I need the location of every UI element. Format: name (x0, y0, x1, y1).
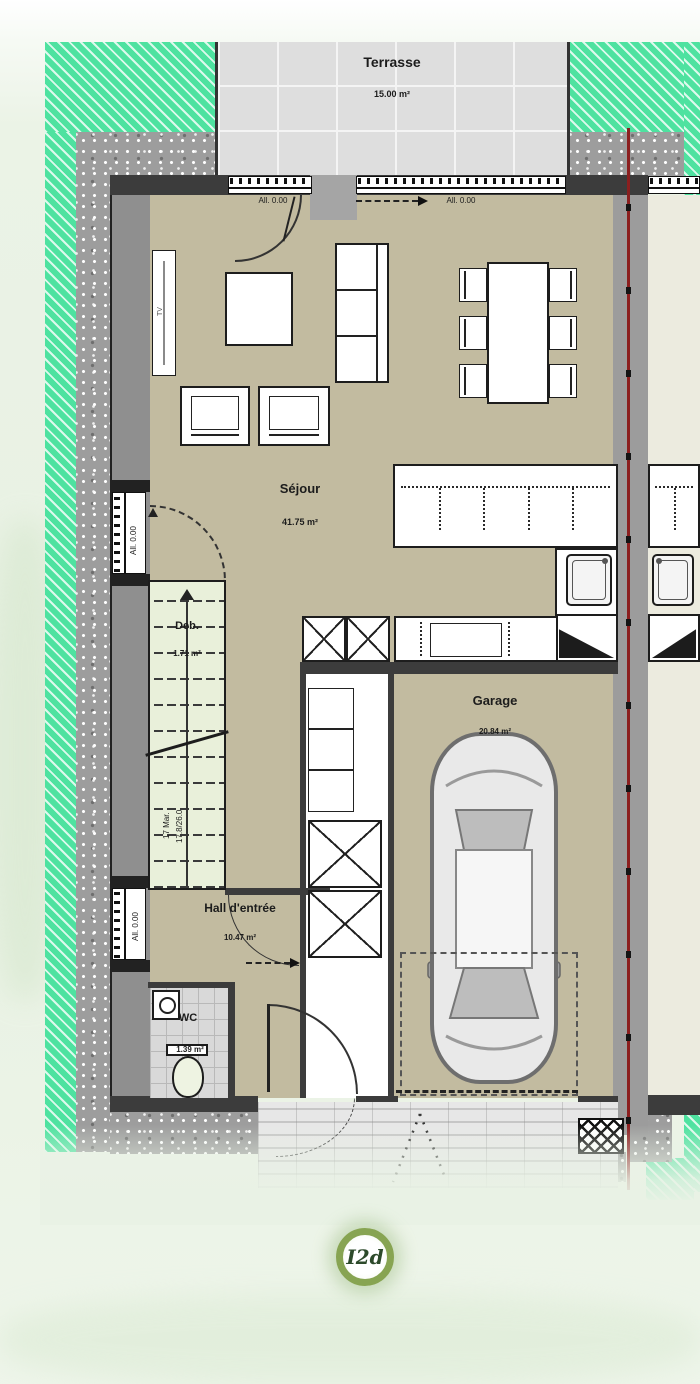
dark-unit-fill (559, 618, 614, 658)
neighbor-sink (652, 554, 694, 606)
window-glass-line (124, 889, 126, 959)
window-hatch (358, 178, 564, 184)
sofa-cushion-divider (337, 335, 376, 337)
sill-annotation-top-left: All. 0.00 (238, 197, 308, 206)
room-label-wc: WC (166, 1012, 210, 1024)
neighbor-counter (648, 464, 700, 548)
tall-cupboard (308, 890, 382, 958)
door-step-block (310, 175, 357, 220)
window-glass-line (649, 187, 699, 189)
neighbor-window-top (648, 176, 700, 194)
sill-annotation-left-lower: All. 0.00 (132, 892, 141, 962)
armchair (258, 386, 330, 446)
room-area-hall: 10.47 m² (160, 934, 320, 943)
window-hatch (230, 178, 310, 184)
room-area-terrasse: 15.00 m² (292, 90, 492, 100)
window-annotation-arrow-line (356, 200, 418, 202)
dining-chair (549, 364, 577, 398)
kitchen-counter-top (393, 464, 618, 548)
armchair-front-line (191, 434, 239, 436)
room-label-garage: Garage (440, 694, 550, 708)
sofa (335, 243, 389, 383)
boundary-dots (626, 128, 631, 1190)
armchair (180, 386, 250, 446)
garage-door-dashed (396, 1090, 578, 1093)
window-hatch (650, 178, 698, 184)
tv-label: TV (157, 296, 165, 328)
chair-back-line (464, 367, 466, 395)
wall-left (110, 195, 150, 1110)
cabinet-dotted-divider (572, 488, 574, 530)
sill-annotation-left-upper: All. 0.00 (130, 504, 139, 578)
cabinet-dotted-divider (674, 488, 676, 530)
terrace-door-window (228, 176, 312, 194)
room-label-sejour: Séjour (240, 482, 360, 496)
cabinet-dotted-divider (439, 488, 441, 530)
counter-dotted-divider (420, 622, 422, 656)
chair-back-line (464, 271, 466, 299)
stair-count-label: 17 Mar. (163, 772, 172, 880)
lawn-top-left (45, 42, 215, 132)
armchair-cushion (191, 396, 239, 430)
chair-back-line (570, 271, 572, 299)
wall-bottom-left (110, 1096, 258, 1112)
gravel-top-left (76, 132, 215, 176)
room-label-terrasse: Terrasse (292, 55, 492, 70)
dining-chair (549, 268, 577, 302)
shelf-box (308, 729, 354, 770)
kitchen-dark-unit (555, 614, 618, 662)
cabinet-dotted-divider (528, 488, 530, 530)
car-roof (456, 850, 532, 968)
room-label-deb: Deb. (152, 620, 222, 632)
tall-cupboard (308, 820, 382, 888)
cooktop (430, 623, 502, 657)
chair-back-line (570, 319, 572, 347)
neighbor-dark-unit (648, 614, 700, 662)
room-area-wc: 1.39 m² (160, 1046, 220, 1055)
chair-back-line (464, 319, 466, 347)
coffee-table (225, 272, 293, 346)
parking-dashed-outline (400, 952, 578, 1096)
window-hatch (114, 494, 120, 572)
dining-chair (549, 316, 577, 350)
gravel-left-band (76, 132, 110, 1152)
sink-basin (572, 560, 606, 600)
window-glass-line (124, 493, 126, 573)
unit-badge: I2d (336, 1228, 394, 1286)
hall-window-west (112, 888, 146, 960)
window-hatch (114, 890, 120, 958)
lawn-top-right (570, 42, 700, 132)
side-door-arrow (148, 508, 158, 517)
dining-table (487, 262, 549, 404)
floor-plan-canvas: Terrasse 15.00 m² Séjour 41.75 m² Deb. 1… (0, 0, 700, 1384)
chair-back-line (570, 367, 572, 395)
room-area-garage: 20.84 m² (440, 728, 550, 737)
unit-badge-label: I2d (346, 1245, 383, 1269)
wall-sejour-garage (300, 662, 618, 674)
armchair-cushion (269, 396, 319, 430)
shelf-stack (308, 688, 354, 812)
window-pier (110, 876, 150, 888)
neighbor-wall-bottom (648, 1095, 700, 1115)
cabinet-dotted-line (401, 486, 610, 488)
stair-dimensions-label: 17.8/26.0 (176, 772, 185, 880)
sink-tap (656, 558, 662, 564)
window-glass-line (357, 187, 565, 189)
wall-garage-west (388, 662, 394, 1098)
cabinet-dotted-divider (483, 488, 485, 530)
lawn-left-strip (45, 42, 76, 1152)
window-glass-line (229, 187, 311, 189)
kitchen-counter-bottom (394, 616, 558, 662)
entry-direction-arrow-head (290, 958, 300, 968)
toilet-bowl (172, 1056, 204, 1098)
window-pier (110, 480, 150, 492)
wash-blob-bottom (0, 1295, 700, 1384)
sofa-cushion-divider (337, 289, 376, 291)
kitchen-sink (566, 554, 612, 606)
sink-tap (602, 558, 608, 564)
sill-annotation-top-right: All. 0.00 (426, 197, 496, 206)
watercolor-fade (40, 1125, 700, 1225)
sejour-window-top (356, 176, 566, 194)
room-area-deb: 1.71 m² (152, 650, 222, 659)
front-door-leaf (267, 1004, 270, 1092)
dining-chair (459, 268, 487, 302)
shelf-box (308, 770, 354, 812)
window-pier (110, 960, 150, 972)
stair-up-arrow (180, 589, 194, 600)
room-area-sejour: 41.75 m² (240, 518, 360, 528)
counter-dotted-divider (508, 622, 510, 656)
armchair-front-line (269, 434, 319, 436)
appliance-box (346, 616, 390, 662)
shelf-box (308, 688, 354, 729)
car-rear-window (456, 810, 532, 850)
sofa-backrest-line (376, 245, 378, 381)
dining-chair (459, 364, 487, 398)
dark-unit-fill (652, 618, 696, 658)
dining-chair (459, 316, 487, 350)
room-label-hall: Hall d'entrée (160, 902, 320, 915)
boundary-red-line (627, 128, 630, 1190)
wall-wc-east (228, 982, 235, 1098)
entry-direction-arrow-line (246, 962, 290, 964)
appliance-box (302, 616, 346, 662)
sink-basin (658, 560, 688, 600)
